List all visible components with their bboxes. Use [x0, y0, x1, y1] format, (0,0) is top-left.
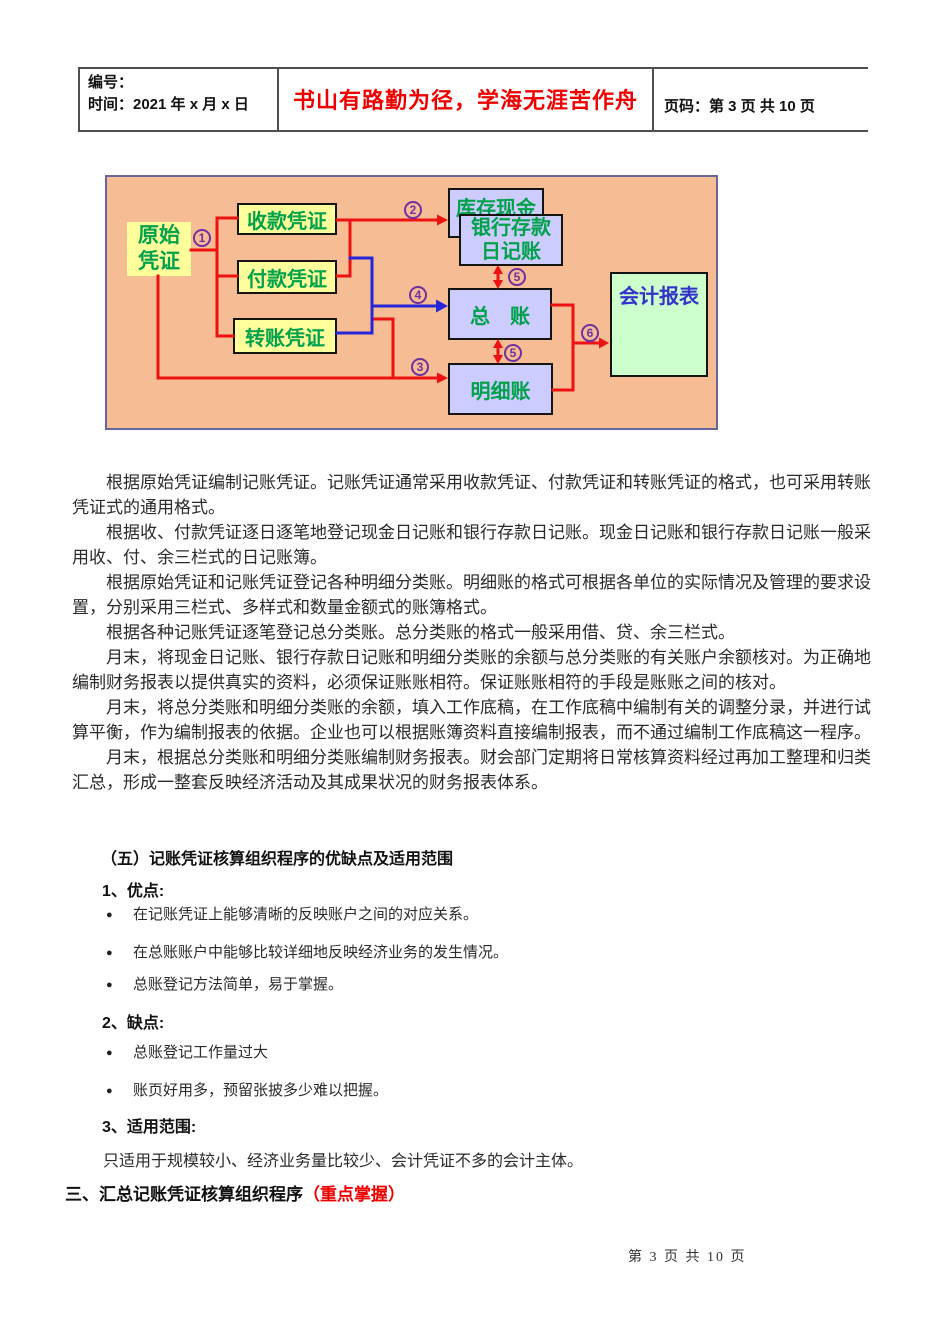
step-circle-6: 6 — [581, 324, 599, 342]
step-circle-2: 2 — [404, 201, 422, 219]
node-subsidiary-ledger: 明细账 — [448, 363, 553, 415]
node-general-ledger: 总 账 — [448, 288, 552, 340]
list-item: ●总账登记方法简单，易于掌握。 — [106, 973, 866, 994]
list-item-text: 总账登记方法简单，易于掌握。 — [133, 977, 343, 993]
paragraph: 根据收、付款凭证逐日逐笔地登记现金日记账和银行存款日记账。现金日记账和银行存款日… — [72, 520, 874, 570]
disadvantages-label: 2、缺点: — [102, 1009, 164, 1033]
scope-text: 只适用于规模较小、经济业务量比较少、会计凭证不多的会计主体。 — [103, 1147, 583, 1171]
accounting-flowchart: 原始 凭证 收款凭证 付款凭证 转账凭证 库存现金 银行存款 日记账 总 账 明… — [105, 175, 718, 430]
list-item-text: 在总账账户中能够比较详细地反映经济业务的发生情况。 — [133, 945, 508, 961]
list-item-text: 账页好用多，预留张披多少难以把握。 — [133, 1083, 388, 1099]
paragraph: 月末，根据总分类账和明细分类账编制财务报表。财会部门定期将日常核算资料经过再加工… — [72, 745, 874, 795]
node-original-voucher: 原始 凭证 — [127, 222, 191, 276]
list-item: ●在总账账户中能够比较详细地反映经济业务的发生情况。 — [106, 941, 866, 962]
bullet-icon: ● — [106, 1085, 133, 1097]
paragraph: 月末，将总分类账和明细分类账的余额，填入工作底稿，在工作底稿中编制有关的调整分录… — [72, 695, 874, 745]
list-item-text: 总账登记工作量过大 — [133, 1045, 268, 1061]
scope-label: 3、适用范围: — [102, 1113, 196, 1137]
step-circle-1: 1 — [193, 229, 211, 247]
node-bank-deposit-journal: 银行存款 日记账 — [459, 214, 563, 266]
bullet-icon: ● — [106, 909, 133, 921]
paragraph: 根据各种记账凭证逐笔登记总分类账。总分类账的格式一般采用借、贷、余三栏式。 — [72, 620, 874, 645]
doc-page-label: 页码：第 3 页 共 10 页 — [664, 95, 815, 116]
bullet-icon: ● — [106, 1047, 133, 1059]
node-receipt-voucher: 收款凭证 — [237, 203, 337, 235]
header-divider-2 — [652, 67, 654, 132]
node-transfer-voucher: 转账凭证 — [233, 318, 337, 354]
doc-number-label: 编号： — [88, 71, 133, 92]
node-accounting-report: 会计报表 — [610, 272, 708, 377]
section-three-emphasis: （重点掌握） — [303, 1185, 405, 1204]
node-payment-voucher: 付款凭证 — [237, 260, 337, 294]
step-circle-4: 4 — [409, 286, 427, 304]
header-border-left — [78, 67, 80, 132]
paragraph: 根据原始凭证编制记账凭证。记账凭证通常采用收款凭证、付款凭证和转账凭证的格式，也… — [72, 470, 874, 520]
footer-page-info: 第 3 页 共 10 页 — [628, 1246, 747, 1266]
list-item: ●账页好用多，预留张披多少难以把握。 — [106, 1079, 866, 1100]
list-item: ●在记账凭证上能够清晰的反映账户之间的对应关系。 — [106, 903, 866, 924]
body-text: 根据原始凭证编制记账凭证。记账凭证通常采用收款凭证、付款凭证和转账凭证的格式，也… — [72, 470, 874, 795]
bullet-icon: ● — [106, 947, 133, 959]
paragraph: 月末，将现金日记账、银行存款日记账和明细分类账的余额与总分类账的有关账户余额核对… — [72, 645, 874, 695]
section-five-title: （五）记账凭证核算组织程序的优缺点及适用范围 — [101, 845, 453, 869]
step-circle-5b: 5 — [504, 344, 522, 362]
advantages-label: 1、优点: — [102, 877, 164, 901]
list-item-text: 在记账凭证上能够清晰的反映账户之间的对应关系。 — [133, 907, 478, 923]
step-circle-5a: 5 — [508, 268, 526, 286]
step-circle-3: 3 — [411, 358, 429, 376]
paragraph: 根据原始凭证和记账凭证登记各种明细分类账。明细账的格式可根据各单位的实际情况及管… — [72, 570, 874, 620]
bullet-icon: ● — [106, 979, 133, 991]
doc-motto: 书山有路勤为径，学海无涯苦作舟 — [279, 67, 652, 131]
section-three-heading: 三、汇总记账凭证核算组织程序（重点掌握） — [65, 1180, 405, 1205]
document-page: 编号： 时间：2021 年 x 月 x 日 书山有路勤为径，学海无涯苦作舟 页码… — [0, 0, 950, 1344]
list-item: ●总账登记工作量过大 — [106, 1041, 866, 1062]
doc-time-label: 时间：2021 年 x 月 x 日 — [88, 93, 249, 114]
section-three-title: 三、汇总记账凭证核算组织程序 — [65, 1185, 303, 1204]
